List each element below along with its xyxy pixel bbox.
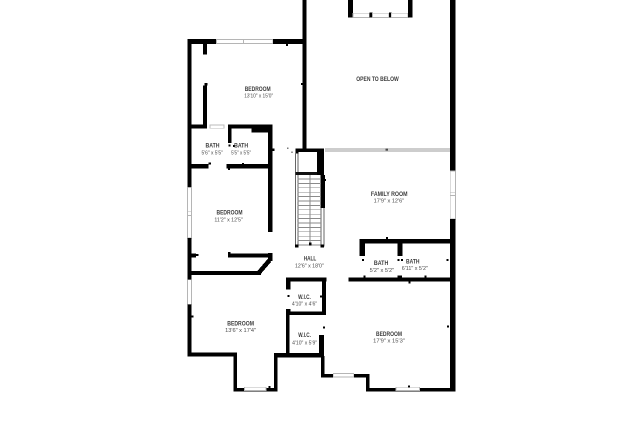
svg-text:W.I.C.: W.I.C. (298, 294, 311, 301)
svg-text:W.I.C.: W.I.C. (298, 332, 311, 339)
svg-text:BATH: BATH (206, 143, 220, 150)
svg-text:4'10" x 4'6": 4'10" x 4'6" (292, 302, 317, 308)
svg-text:BEDROOM: BEDROOM (217, 210, 243, 217)
svg-text:11'2" x 12'5": 11'2" x 12'5" (214, 217, 243, 223)
svg-text:4'10" x 5'9": 4'10" x 5'9" (292, 341, 317, 347)
svg-text:6'11" x 5'2": 6'11" x 5'2" (402, 266, 428, 272)
svg-text:OPEN TO BELOW: OPEN TO BELOW (356, 76, 399, 83)
svg-text:5'6" x 5'5": 5'6" x 5'5" (202, 150, 223, 156)
svg-text:13'6" x 17'4": 13'6" x 17'4" (225, 328, 256, 334)
svg-text:BEDROOM: BEDROOM (376, 331, 402, 338)
svg-text:BEDROOM: BEDROOM (227, 320, 254, 327)
svg-text:BATH: BATH (374, 260, 389, 267)
svg-text:HALL: HALL (304, 256, 317, 263)
svg-text:BATH: BATH (234, 143, 248, 150)
svg-text:12'6" x 18'0": 12'6" x 18'0" (295, 264, 324, 270)
svg-text:5'2" x 5'2": 5'2" x 5'2" (370, 268, 395, 274)
svg-text:5'5" x 5'5": 5'5" x 5'5" (231, 151, 251, 157)
svg-text:BEDROOM: BEDROOM (245, 86, 271, 93)
svg-text:BATH: BATH (406, 258, 420, 265)
svg-text:17'9" x 12'6": 17'9" x 12'6" (374, 199, 405, 205)
svg-text:FAMILY ROOM: FAMILY ROOM (371, 191, 408, 198)
svg-text:17'9" x 15'3": 17'9" x 15'3" (373, 339, 405, 345)
svg-text:13'10" x 15'0": 13'10" x 15'0" (244, 93, 273, 99)
